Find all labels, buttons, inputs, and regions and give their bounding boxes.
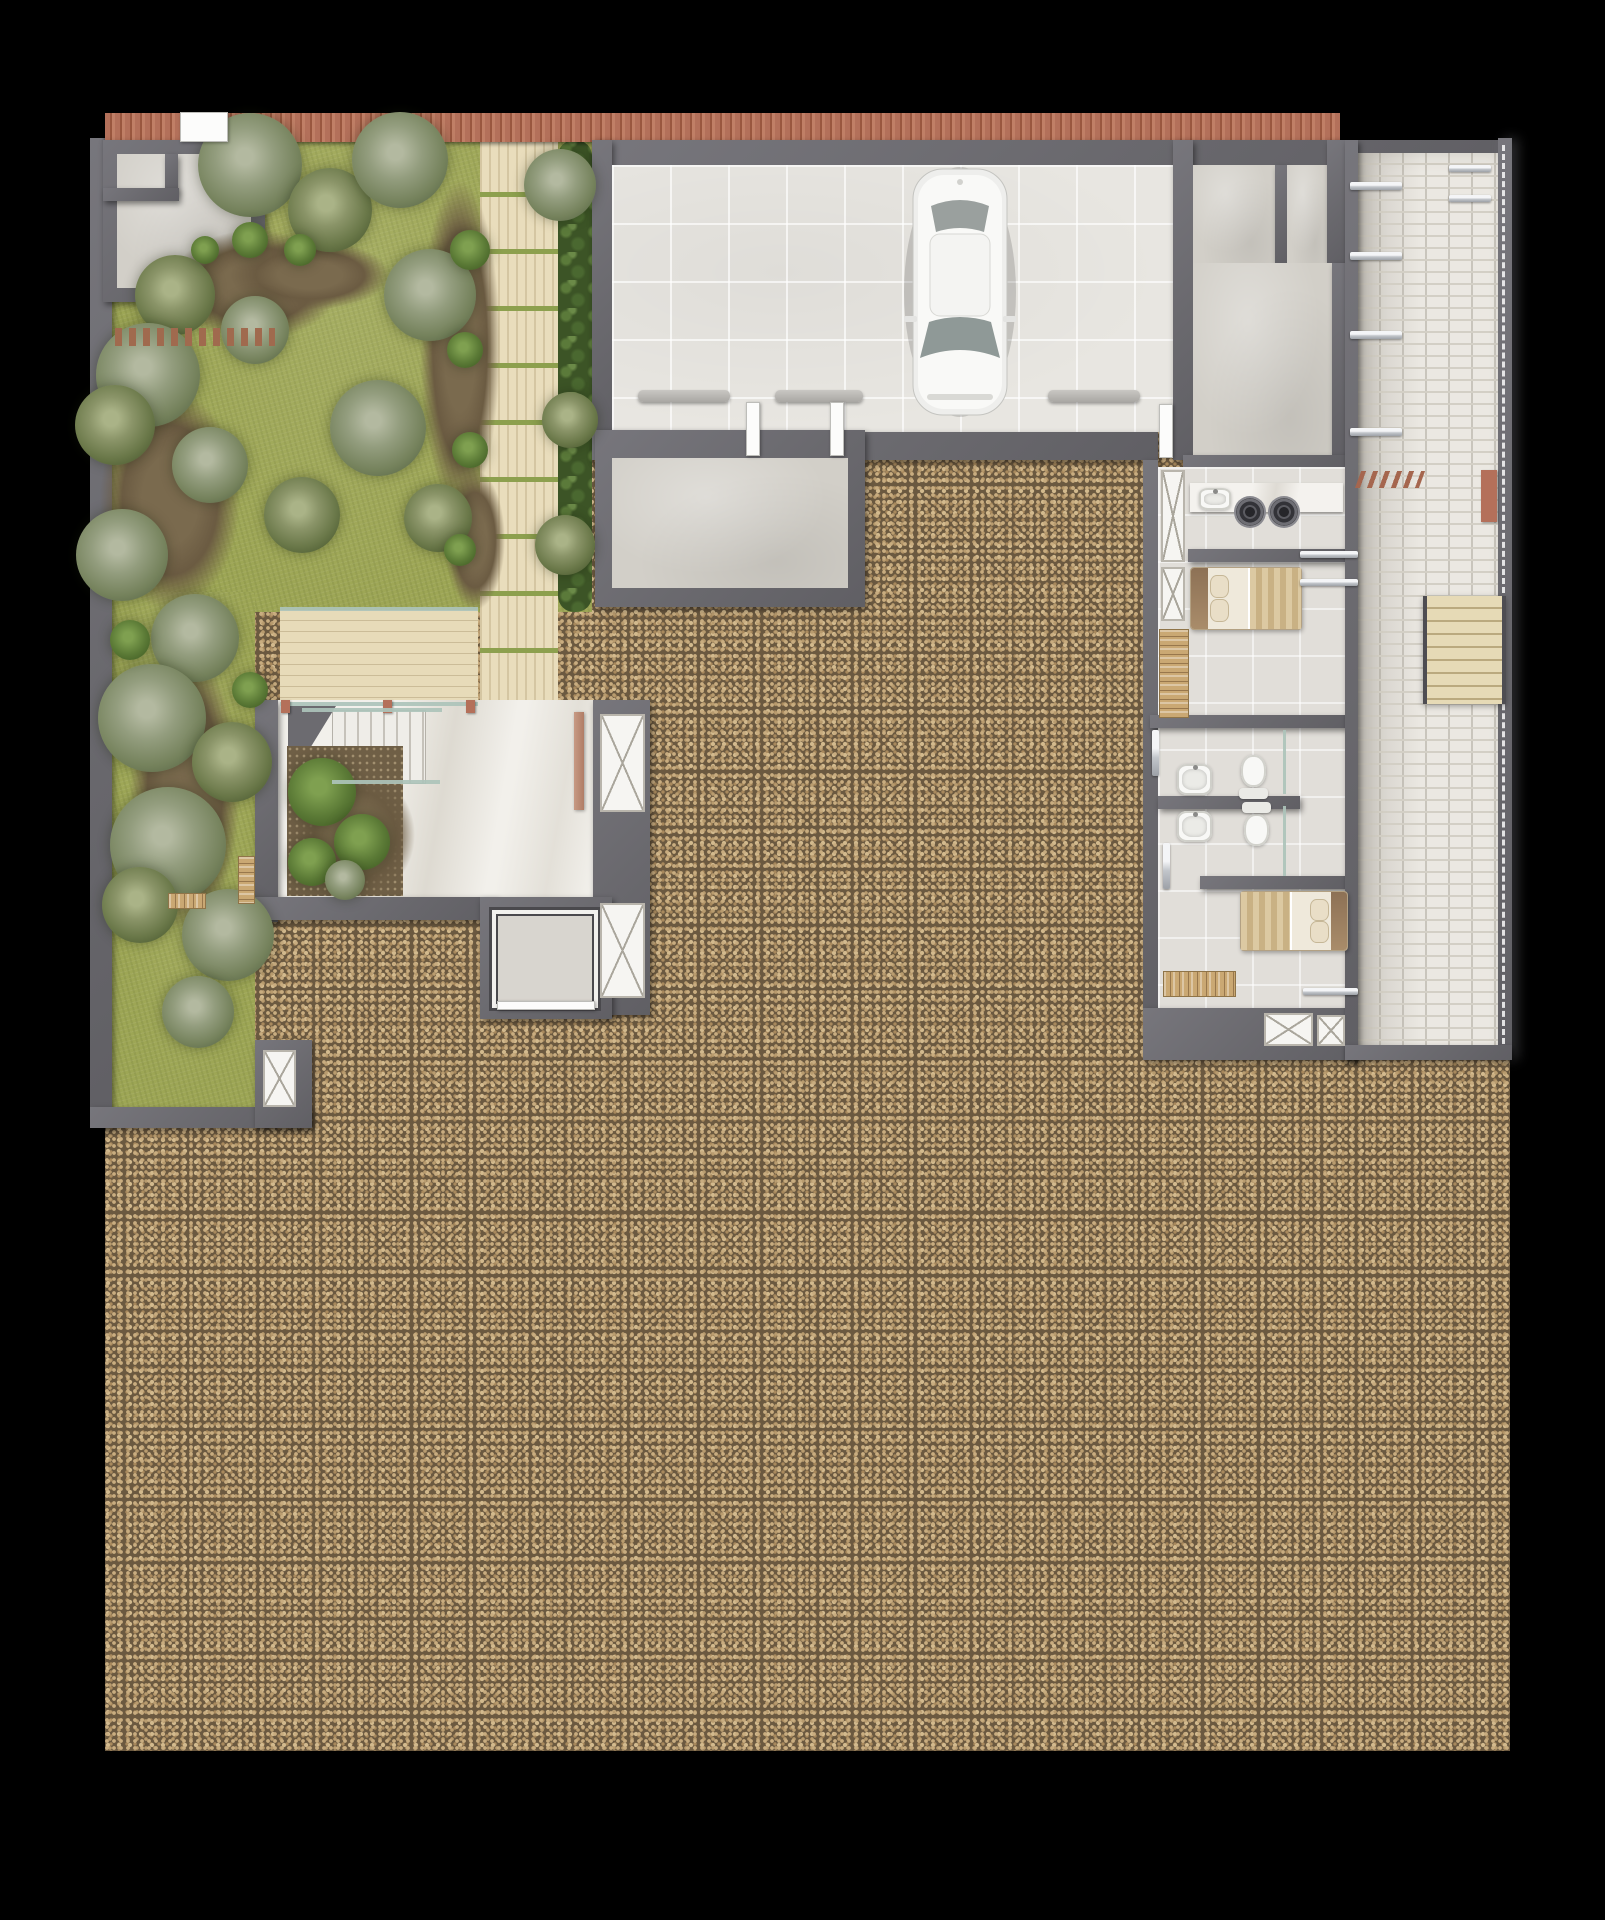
plank-row bbox=[115, 328, 275, 346]
silver-bar bbox=[1303, 988, 1358, 995]
bed bbox=[1240, 891, 1348, 951]
toilet bbox=[1239, 755, 1268, 799]
pillow bbox=[1210, 599, 1230, 622]
bumper bbox=[1048, 390, 1140, 402]
bed bbox=[1190, 567, 1302, 630]
slats bbox=[1159, 629, 1189, 718]
xbox bbox=[1161, 567, 1185, 621]
glass-line bbox=[1283, 806, 1286, 876]
silver-bar bbox=[1300, 551, 1358, 558]
door-white bbox=[746, 402, 760, 456]
door-white bbox=[830, 402, 844, 456]
toilet bbox=[1242, 802, 1271, 846]
door-white bbox=[180, 112, 228, 142]
silver-bar bbox=[1350, 331, 1402, 339]
tc-post bbox=[466, 700, 475, 713]
washer bbox=[1270, 498, 1298, 526]
xbox bbox=[1264, 1013, 1313, 1046]
zigzag bbox=[1355, 471, 1425, 488]
sink bbox=[1199, 488, 1231, 510]
floor-plan-canvas bbox=[0, 0, 1605, 1920]
furniture-layer bbox=[0, 0, 1605, 1920]
xbox bbox=[600, 903, 645, 998]
glass-line bbox=[280, 607, 478, 611]
door-white bbox=[497, 1001, 595, 1010]
silver-bar bbox=[1350, 182, 1402, 190]
pillow bbox=[1310, 921, 1329, 943]
xbox bbox=[263, 1050, 296, 1107]
glass-line bbox=[332, 780, 440, 784]
bumper bbox=[775, 390, 863, 402]
silver-bar bbox=[1449, 165, 1491, 172]
glass-line bbox=[302, 708, 442, 712]
slats bbox=[238, 856, 255, 904]
silver-bar bbox=[1350, 252, 1402, 260]
silver-bar bbox=[1163, 843, 1170, 889]
silver-bar bbox=[1300, 579, 1358, 586]
slats bbox=[168, 893, 206, 909]
sink bbox=[1177, 764, 1212, 795]
silver-bar bbox=[1350, 428, 1402, 436]
silver-bar bbox=[1152, 730, 1159, 776]
pillow bbox=[1210, 575, 1230, 598]
parked-car bbox=[903, 166, 1017, 418]
tc-post bbox=[281, 700, 290, 713]
sink bbox=[1177, 811, 1212, 842]
glass-line bbox=[1283, 730, 1286, 794]
door-tan bbox=[574, 712, 584, 810]
xbox bbox=[1161, 470, 1185, 562]
silver-bar bbox=[1449, 195, 1491, 202]
bumper bbox=[638, 390, 730, 402]
xbox bbox=[600, 714, 645, 812]
washer bbox=[1236, 498, 1264, 526]
pillow bbox=[1310, 899, 1329, 921]
door-white bbox=[1159, 404, 1173, 458]
tc-post bbox=[1481, 470, 1497, 522]
slats bbox=[1163, 971, 1236, 997]
xbox bbox=[1317, 1015, 1345, 1046]
glass-line bbox=[280, 702, 478, 706]
